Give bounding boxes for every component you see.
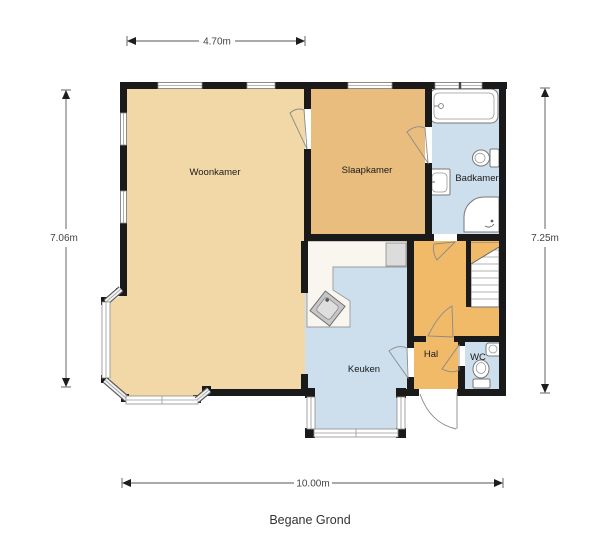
dimension-label-top: 4.70m bbox=[203, 37, 231, 48]
dimension-label-bottom: 10.00m bbox=[296, 479, 329, 490]
dimension-label-right: 7.25m bbox=[531, 233, 559, 244]
window bbox=[158, 83, 202, 89]
window bbox=[435, 83, 459, 89]
window bbox=[348, 83, 392, 89]
room-label-badkamer: Badkamer bbox=[455, 173, 498, 184]
toilet-badkamer bbox=[473, 149, 500, 167]
window bbox=[121, 113, 127, 145]
dimension-top: 4.70m bbox=[127, 36, 305, 48]
dimension-right: 7.25m bbox=[531, 88, 559, 393]
front-door bbox=[420, 392, 457, 429]
dimension-label-left: 7.06m bbox=[50, 233, 78, 244]
room-slaapkamer-floor bbox=[311, 89, 425, 234]
room-label-wc: WC bbox=[470, 352, 486, 363]
dimension-left: 7.06m bbox=[50, 90, 78, 387]
window bbox=[121, 191, 127, 223]
kitchen-appliance bbox=[386, 243, 406, 266]
bathtub bbox=[430, 89, 498, 123]
room-label-hal: Hal bbox=[424, 349, 438, 360]
window bbox=[461, 83, 482, 89]
page-title: Begane Grond bbox=[269, 513, 350, 527]
window bbox=[247, 83, 275, 89]
room-label-woonkamer: Woonkamer bbox=[189, 167, 240, 178]
room-label-keuken: Keuken bbox=[348, 364, 380, 375]
toilet-wc bbox=[473, 360, 490, 388]
room-woonkamer-floor bbox=[110, 89, 305, 401]
room-label-slaapkamer: Slaapkamer bbox=[342, 165, 393, 176]
sink-badkamer bbox=[429, 169, 450, 195]
floor-plan-canvas: Woonkamer Slaapkamer Badkamer Keuken Hal… bbox=[0, 0, 600, 535]
floor-plan: Woonkamer Slaapkamer Badkamer Keuken Hal… bbox=[0, 0, 600, 535]
sink-wc bbox=[486, 343, 501, 356]
dimension-bottom: 10.00m bbox=[122, 478, 503, 490]
staircase bbox=[471, 243, 499, 307]
